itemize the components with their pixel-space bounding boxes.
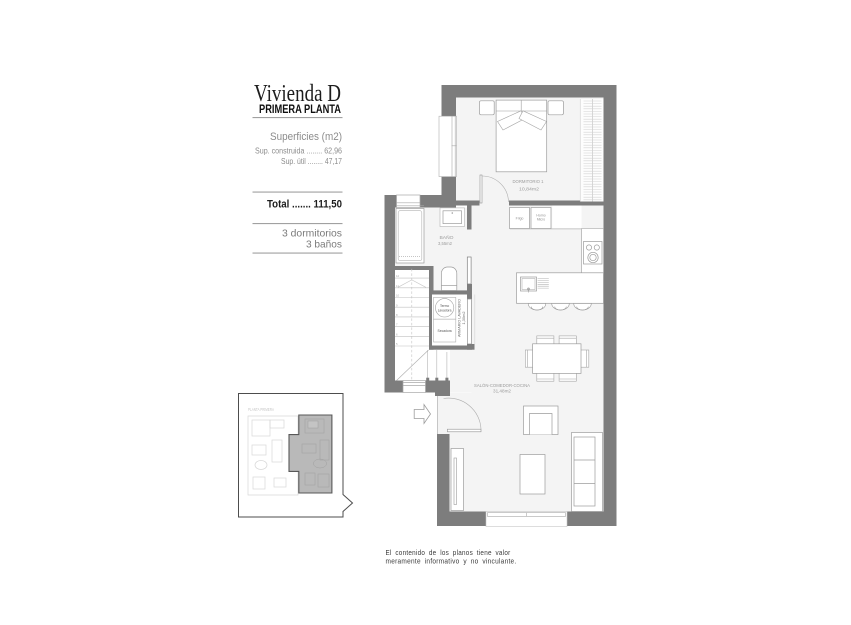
svg-text:12: 12 — [396, 274, 400, 278]
svg-text:10: 10 — [396, 294, 400, 298]
svg-text:Total ....... 111,50: Total ....... 111,50 — [267, 199, 342, 211]
svg-text:Sup. útil ........ 47,17: Sup. útil ........ 47,17 — [281, 157, 342, 166]
svg-text:meramente informativo y no vin: meramente informativo y no vinculante. — [386, 557, 517, 566]
svg-text:SALÓN-COMEDOR-COCINA: SALÓN-COMEDOR-COCINA — [474, 383, 530, 388]
svg-text:Secadora: Secadora — [438, 329, 452, 333]
svg-text:PRIMERA PLANTA: PRIMERA PLANTA — [259, 104, 341, 116]
svg-text:PLANTA PRIMERA: PLANTA PRIMERA — [248, 407, 274, 412]
svg-text:31,48m2: 31,48m2 — [493, 389, 512, 394]
svg-text:Superficies (m2): Superficies (m2) — [270, 131, 342, 143]
svg-text:1,30m2: 1,30m2 — [462, 311, 466, 324]
svg-text:10,84m2: 10,84m2 — [519, 187, 540, 192]
svg-text:3 baños: 3 baños — [306, 239, 342, 251]
svg-text:Micro: Micro — [537, 218, 545, 222]
svg-text:3,55m2: 3,55m2 — [438, 241, 453, 246]
svg-text:BAÑO: BAÑO — [440, 235, 455, 240]
svg-text:Sup. construida ........ 62,96: Sup. construida ........ 62,96 — [255, 147, 342, 156]
svg-text:11: 11 — [396, 284, 399, 288]
svg-text:Frigo: Frigo — [516, 217, 524, 221]
svg-text:Termo: Termo — [440, 304, 449, 308]
svg-text:DORMITORIO 1: DORMITORIO 1 — [513, 179, 545, 184]
svg-text:Lavadora: Lavadora — [438, 308, 452, 312]
